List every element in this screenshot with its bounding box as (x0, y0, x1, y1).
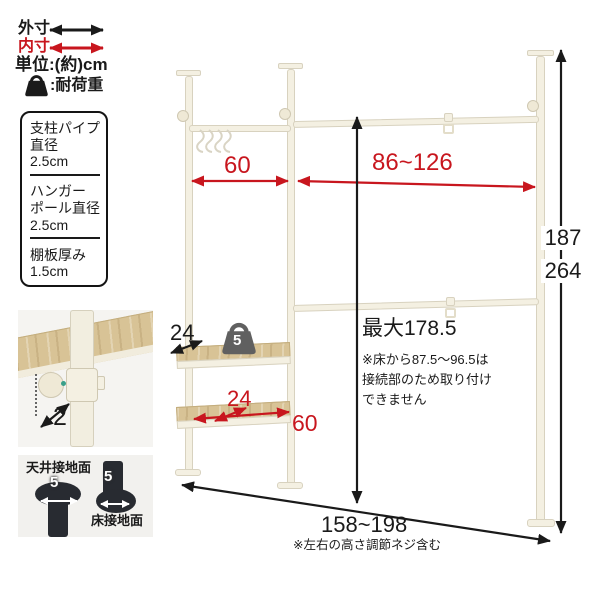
left-hanger-width-value: 60 (224, 153, 251, 179)
max-pole-note-line: できません (362, 390, 492, 410)
max-pole-note-line: ※床から87.5〜96.5は (362, 350, 492, 370)
max-pole-note: ※床から87.5〜96.5は 接続部のため取り付け できません (362, 350, 492, 410)
total-width-note: ※左右の高さ調節ネジ含む (293, 539, 441, 553)
bottom-shelf-width-value: 60 (292, 411, 318, 436)
product-dimension-diagram: 外寸 内寸 単位:(約)cm :耐荷重 支柱パイプ 直径 2.5cm ハンガー … (0, 0, 600, 600)
spec-line: 1.5cm (30, 263, 100, 280)
spec-line: ハンガー (30, 183, 100, 200)
load-capacity-label: :耐荷重 (50, 77, 103, 95)
total-width-value: 158~198 (321, 513, 407, 537)
spec-line: 支柱パイプ (30, 120, 100, 137)
bottom-shelf-depth-value: 24 (227, 387, 251, 411)
spec-line: 2.5cm (30, 217, 100, 234)
unit-label: 単位:(約)cm (15, 56, 108, 75)
inner-dim-label: 内寸 (18, 38, 50, 56)
right-hanger-width-arrow (298, 181, 535, 187)
spec-line: ポール直径 (30, 200, 100, 217)
spec-line: 2.5cm (30, 153, 100, 170)
spec-section-shelf: 棚板厚み 1.5cm (30, 247, 100, 280)
spec-section-hanger-pole: ハンガー ポール直径 2.5cm (30, 183, 100, 239)
right-hanger-width-value: 86~126 (372, 150, 453, 176)
ceiling-pad-label: 天井接地面 (26, 461, 91, 475)
ceiling-pad-size: 5 (50, 475, 58, 492)
max-pole-height-value: 最大178.5 (362, 317, 457, 340)
floor-pad-size: 5 (104, 469, 112, 486)
outer-dim-label: 外寸 (18, 20, 50, 38)
max-pole-note-line: 接続部のため取り付け (362, 370, 492, 390)
floor-pad-label: 床接地面 (91, 514, 143, 528)
shelf-load-value: 5 (233, 333, 241, 350)
spec-box: 支柱パイプ 直径 2.5cm ハンガー ポール直径 2.5cm 棚板厚み 1.5… (20, 111, 108, 287)
total-height-max-value: 264 (541, 259, 585, 283)
top-shelf-depth-value: 24 (170, 321, 194, 345)
spec-line: 棚板厚み (30, 247, 100, 264)
bottom-shelf-width-arrow (194, 412, 289, 419)
total-height-min-value: 187 (541, 226, 585, 250)
spec-line: 直径 (30, 137, 100, 154)
clamp-offset-value: 2 (53, 404, 67, 432)
spec-section-pipe: 支柱パイプ 直径 2.5cm (30, 120, 100, 176)
